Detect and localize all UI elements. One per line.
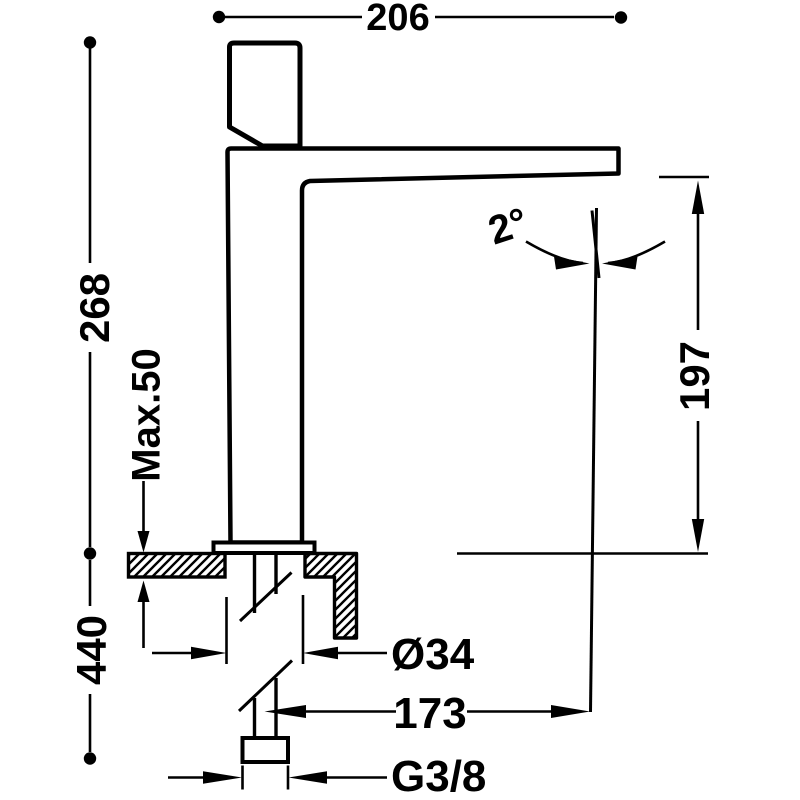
connection-nut	[243, 738, 289, 762]
dim-d34-arrow-left-pointing	[303, 647, 338, 659]
dim-268-dot-bottom	[84, 547, 96, 559]
dim-173-arrow-left	[265, 705, 307, 718]
faucet-handle	[230, 43, 301, 146]
dim-206-label: 206	[366, 0, 429, 39]
dim-max50-arrow-up	[138, 581, 150, 603]
countertop-section	[129, 554, 357, 639]
dim-g38-arrow-left-pointing	[289, 771, 328, 784]
dim-440-label: 440	[68, 615, 115, 685]
dim-angle-label: 2°	[483, 200, 533, 254]
dim-spout-angle: 2°	[483, 200, 665, 712]
dim-197-arrow-up	[692, 181, 704, 215]
technical-drawing-page: 206 268 440 Max.50 2° 197	[0, 0, 800, 800]
dim-173-arrow-right	[551, 705, 590, 718]
pipe-break-mark-upper	[240, 573, 292, 622]
dim-max50-label: Max.50	[125, 348, 169, 481]
outlet-stream-line	[591, 208, 597, 712]
dim-206-dot-right	[615, 11, 627, 23]
dim-supply-thread: G3/8	[168, 752, 486, 800]
dim-173-label: 173	[393, 689, 466, 738]
dim-d34-label: Ø34	[391, 630, 475, 679]
base-flange	[214, 543, 315, 554]
dim-spout-length: 206	[213, 0, 627, 39]
countertop-left-section	[129, 554, 226, 578]
dim-body-diameter: Ø34	[152, 595, 475, 679]
pipe-break-mark-lower	[239, 661, 292, 712]
dim-206-dot-left	[213, 11, 225, 23]
dim-268-label: 268	[71, 273, 118, 343]
angle-arrow-right	[602, 257, 638, 270]
dim-197-label: 197	[671, 341, 718, 411]
dim-g38-label: G3/8	[391, 752, 486, 800]
dim-below-deck-length: 440	[68, 560, 115, 765]
faucet-body	[228, 149, 619, 543]
dim-g38-arrow-right-pointing	[203, 771, 242, 784]
dim-max-deck-thickness: Max.50	[125, 348, 169, 648]
technical-drawing-canvas: 206 268 440 Max.50 2° 197	[0, 0, 800, 800]
dim-440-dot-bottom	[84, 752, 96, 764]
dim-height-above-deck: 268	[71, 36, 118, 559]
angle-arc-left	[526, 242, 583, 264]
dim-outlet-reach: 173	[265, 689, 591, 738]
dim-d34-arrow-right-pointing	[191, 647, 227, 659]
countertop-right-section	[305, 554, 357, 639]
dim-197-arrow-down	[692, 519, 704, 552]
dim-268-dot-top	[84, 36, 96, 48]
dim-max50-arrow-down	[138, 531, 150, 553]
angle-arrow-left	[554, 257, 590, 270]
supply-pipe	[239, 553, 292, 762]
